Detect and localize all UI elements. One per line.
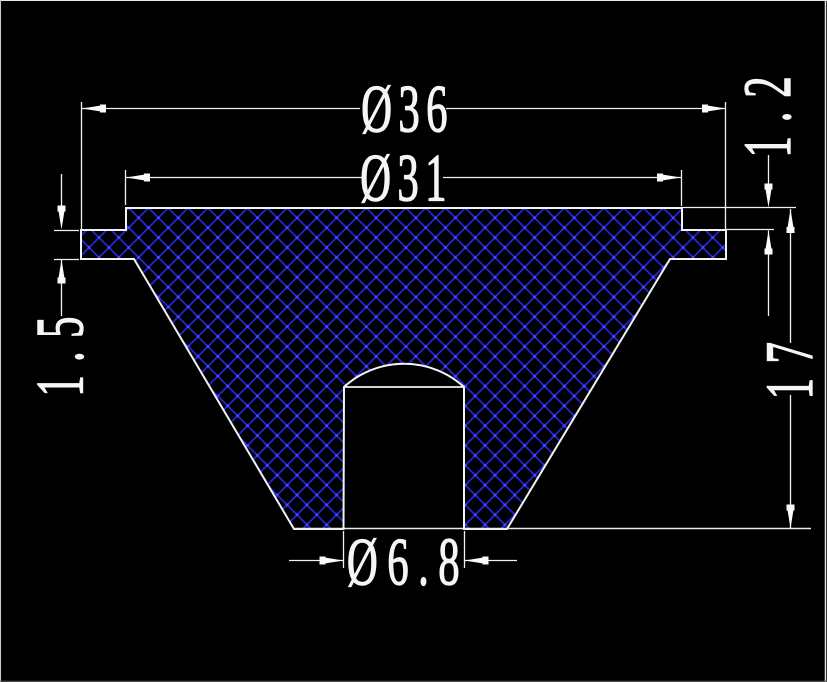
svg-text:17: 17 bbox=[752, 328, 827, 400]
svg-text:Ø31: Ø31 bbox=[360, 141, 453, 216]
svg-text:1.5: 1.5 bbox=[23, 303, 98, 396]
svg-text:Ø36: Ø36 bbox=[361, 72, 454, 147]
svg-text:Ø6.8: Ø6.8 bbox=[347, 525, 469, 600]
svg-text:1.2: 1.2 bbox=[730, 62, 805, 157]
